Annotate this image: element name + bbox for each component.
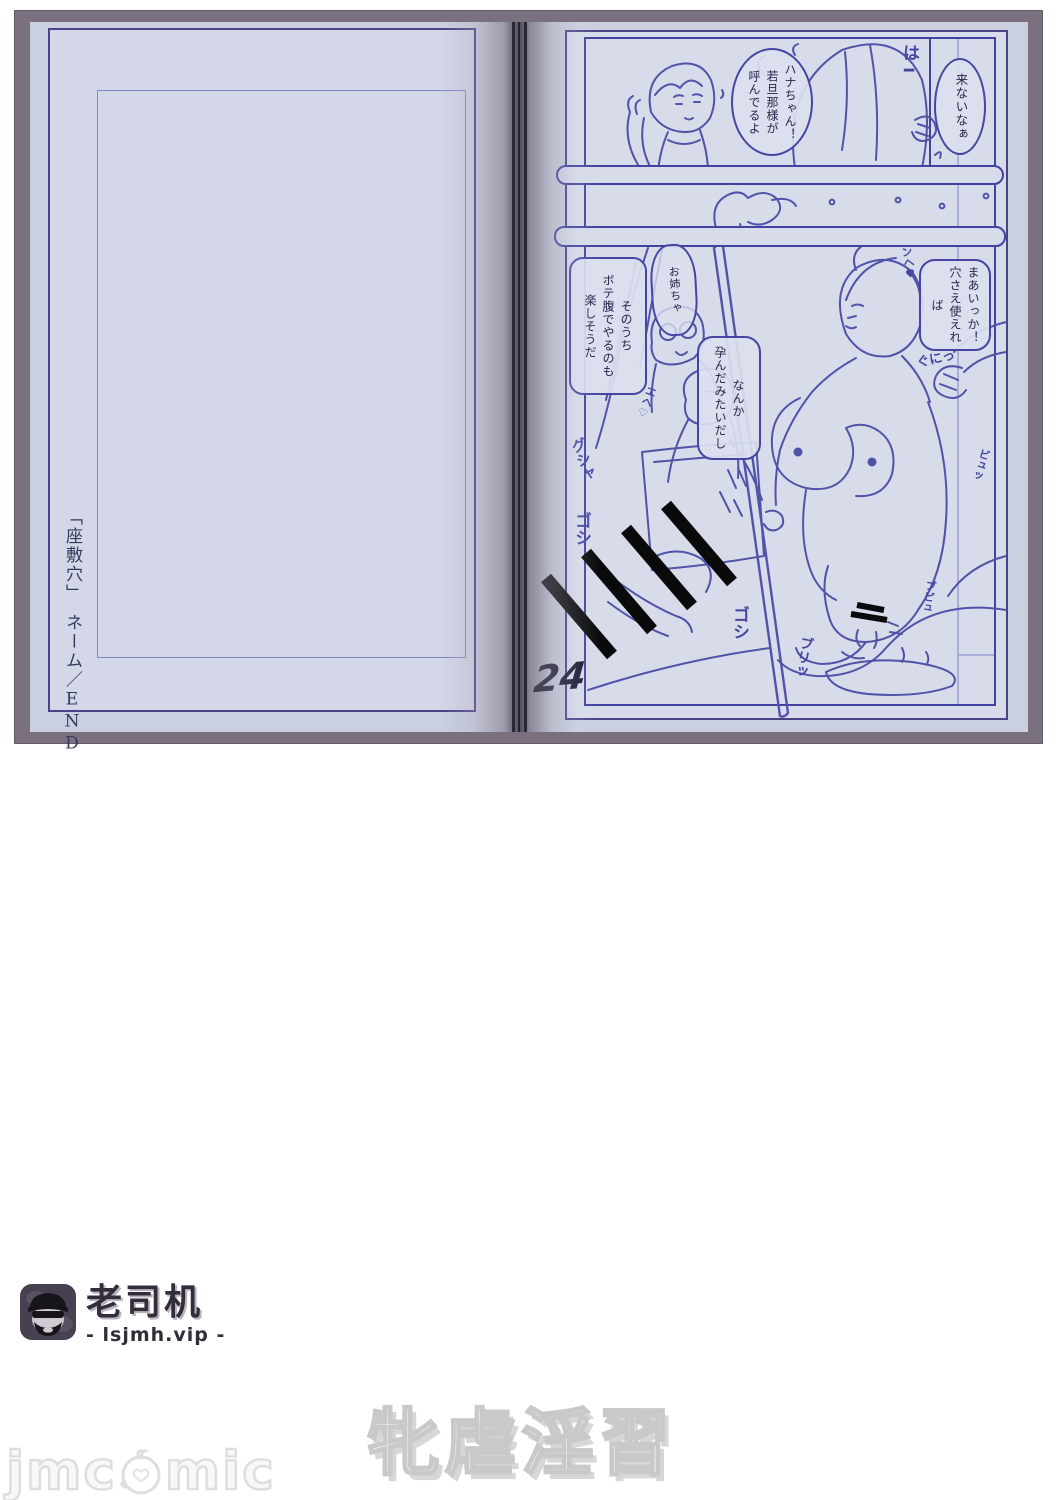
bubble-text: ハナちゃん！ 若旦那様が 呼んでるよ bbox=[745, 63, 799, 141]
logo-title: 老司机 bbox=[86, 1284, 225, 1322]
bubble-text: まあいっか！ 穴さえ使えれば bbox=[928, 261, 982, 349]
speech-bubble-maa: まあいっか！ 穴さえ使えれば bbox=[919, 259, 991, 351]
speech-bubble-hana: ハナちゃん！ 若旦那様が 呼んでるよ bbox=[731, 48, 813, 156]
page-number: 24 bbox=[532, 654, 588, 701]
bubble-text: そのうち ボテ腹でやるのも 楽しそうだ bbox=[581, 274, 635, 378]
jmcomic-text-left: jmc bbox=[6, 1441, 117, 1500]
bubble-text: なんか 孕んだみたいだし bbox=[711, 346, 747, 450]
bubble-text: お姉ちゃ bbox=[665, 266, 684, 315]
chick-icon bbox=[118, 1447, 164, 1497]
sfx-haa: は━ bbox=[897, 44, 922, 81]
left-page-drawing-frame bbox=[97, 90, 466, 658]
sfx-goshi-1: ゴシ bbox=[569, 512, 594, 546]
left-page-vertical-title: 「座敷穴」 ネーム／END bbox=[60, 508, 85, 718]
logo-text-block: 老司机 - lsjmh.vip - bbox=[86, 1284, 225, 1346]
speech-bubble-nanka: なんか 孕んだみたいだし bbox=[697, 336, 761, 460]
driver-icon bbox=[20, 1284, 76, 1340]
logo-subtitle: - lsjmh.vip - bbox=[86, 1324, 225, 1346]
spine-line bbox=[512, 22, 515, 732]
spine-line bbox=[518, 22, 520, 732]
sfx-goshi-2: ゴシ bbox=[727, 606, 752, 640]
bubble-text: 来ないなぁ bbox=[951, 73, 970, 141]
jmcomic-text-right: mic bbox=[165, 1441, 276, 1500]
speech-bubble-konai: 来ないなぁ bbox=[934, 58, 986, 155]
site-logo: 老司机 - lsjmh.vip - bbox=[20, 1284, 225, 1346]
speech-bubble-sonouchi: そのうち ボテ腹でやるのも 楽しそうだ bbox=[569, 257, 647, 395]
spine-line bbox=[524, 22, 527, 732]
page-background: 「座敷穴」 ネーム／END bbox=[0, 0, 1057, 1500]
jmcomic-watermark: jmc mic bbox=[6, 1441, 276, 1500]
